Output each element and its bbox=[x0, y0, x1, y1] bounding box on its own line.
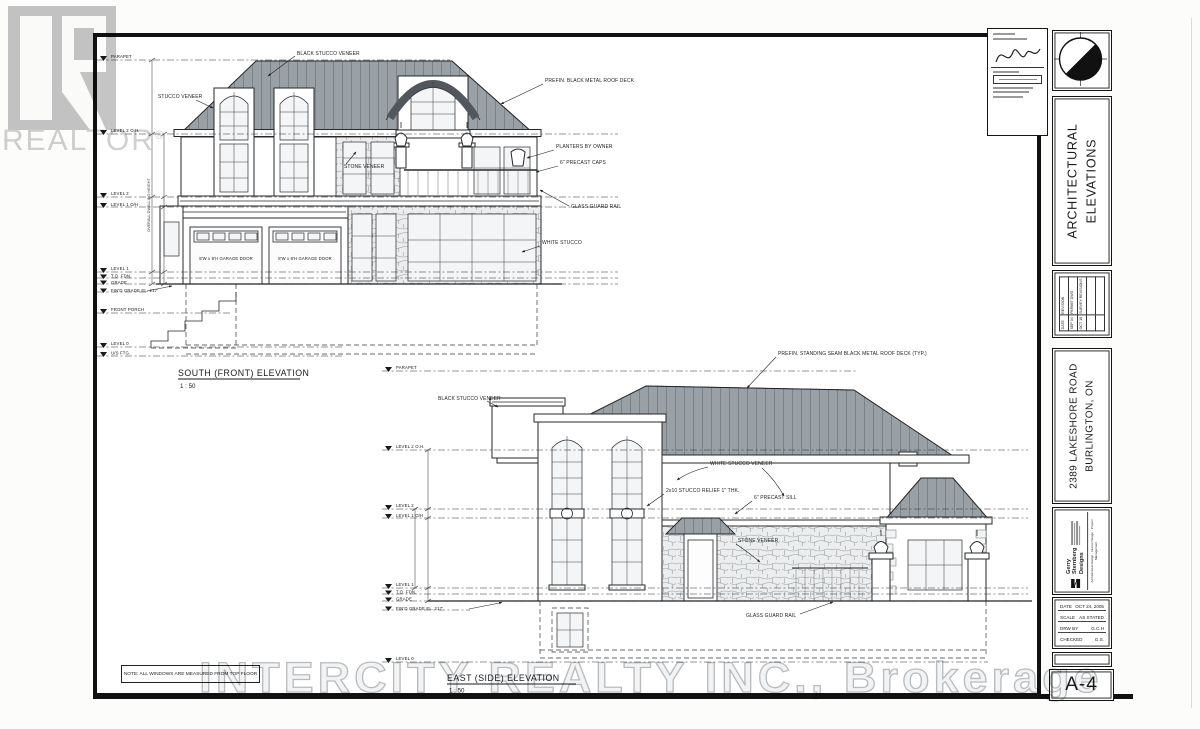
info-label: SCALE bbox=[1060, 615, 1075, 620]
east-dimension-lines bbox=[412, 448, 431, 603]
stamp-text-line bbox=[993, 96, 1023, 98]
sheet-number: A-4 bbox=[1065, 674, 1098, 696]
info-label: CHECKED bbox=[1060, 637, 1082, 642]
stamp-text-line bbox=[993, 87, 1033, 89]
level-label: LEVEL 2 O.H. bbox=[396, 444, 425, 449]
scan-edge-line bbox=[1191, 18, 1192, 708]
designer-name-line2: Sternberg bbox=[1073, 548, 1079, 574]
annotation-label: WHITE STUCCO VENEER bbox=[710, 461, 773, 467]
designer-logo-icon bbox=[1069, 577, 1082, 590]
info-row: SCALE AS STATED bbox=[1058, 614, 1106, 622]
level-label: FRONT PORCH bbox=[111, 307, 144, 312]
info-box: DATE OCT 24, 2005 SCALE AS STATED DRW BY… bbox=[1052, 597, 1112, 649]
revision-box: DATE REVISION SEP 04 PERMIT DWG OCT 18 S… bbox=[1052, 270, 1112, 338]
annotation-label: GLASS GUARD RAIL bbox=[746, 613, 796, 619]
annotation-label: STONE VENEER bbox=[344, 164, 385, 170]
info-value: G.C.H bbox=[1091, 626, 1104, 631]
info-value: G.S. bbox=[1095, 637, 1104, 642]
level-label: FIN'D GRADE EL. 217' bbox=[111, 288, 158, 293]
stamp-box bbox=[987, 28, 1048, 136]
level-label: LEVEL 1 O/H bbox=[111, 202, 138, 207]
annotation-label: PLANTERS BY OWNER bbox=[556, 144, 613, 150]
info-value: AS STATED bbox=[1079, 615, 1104, 620]
south-footing-dashes bbox=[151, 284, 537, 354]
garage-door-1: 8'W x 8'H GARAGE DOOR bbox=[190, 227, 262, 284]
balcony-planter bbox=[511, 149, 525, 166]
annotation-label: WHITE STUCCO bbox=[542, 240, 582, 246]
annotation-label: STUCCO VENEER bbox=[158, 94, 203, 100]
level-label: LEVEL 1 O/H bbox=[396, 513, 423, 518]
revision-desc: SURVEY REVISIONS bbox=[1078, 277, 1087, 315]
info-row: DATE OCT 24, 2005 bbox=[1058, 603, 1106, 611]
revision-desc: PERMIT DWG bbox=[1069, 277, 1078, 315]
project-address-line1: 2389 LAKESHORE ROAD bbox=[1067, 363, 1083, 488]
project-box: 2389 LAKESHORE ROAD BURLINGTON, ON bbox=[1052, 348, 1112, 504]
north-arrow-icon bbox=[1054, 32, 1107, 86]
south-dormer-window-1 bbox=[214, 88, 254, 196]
revision-date-header: DATE bbox=[1060, 315, 1069, 331]
level-label: LEVEL 2 bbox=[111, 191, 129, 196]
south-dormer-window-2 bbox=[274, 88, 314, 196]
east-elevation: PARAPET LEVEL 2 O.H. LEVEL 2 LEVEL 1 O/H… bbox=[382, 351, 1032, 695]
spacer-box bbox=[1052, 652, 1112, 667]
general-note: NOTE: ALL WINDOWS ARE MEASURED FROM TOP … bbox=[121, 665, 260, 683]
south-dimension-lines: OVERALL DWELLING HEIGHT bbox=[147, 58, 167, 286]
info-table: DATE OCT 24, 2005 SCALE AS STATED DRW BY… bbox=[1058, 603, 1106, 643]
garage-door-2: 8'W x 8'H GARAGE DOOR bbox=[269, 227, 341, 284]
level-label: T.O. FDN. bbox=[111, 274, 131, 279]
level-label: LEVEL 1 bbox=[111, 266, 129, 271]
discipline-line1: ARCHITECTURAL bbox=[1063, 123, 1082, 238]
stamp-text-line bbox=[993, 38, 1027, 40]
designer-services: Architectural Design · Interior Design ·… bbox=[1087, 512, 1098, 590]
revision-row bbox=[1096, 277, 1105, 331]
revision-row: OCT 18 SURVEY REVISIONS bbox=[1078, 277, 1087, 331]
stamp-text-line bbox=[993, 71, 1019, 73]
north-arrow-box bbox=[1052, 30, 1112, 91]
revision-row bbox=[1087, 277, 1096, 331]
scanned-drawing-sheet: { "watermarks": { "realtor_logo_text": "… bbox=[0, 0, 1200, 729]
level-label: LEVEL 2 O.H. bbox=[111, 128, 140, 133]
front-steps bbox=[151, 292, 236, 348]
level-label: U/S FTG. bbox=[111, 351, 130, 356]
revision-row: SEP 04 PERMIT DWG bbox=[1069, 277, 1078, 331]
level-label: LEVEL 0 bbox=[111, 341, 129, 346]
stamp-text-line bbox=[993, 33, 1015, 35]
info-label: DRW BY bbox=[1060, 626, 1078, 631]
level-label: PARAPET bbox=[396, 365, 417, 370]
info-row: CHECKED G.S. bbox=[1058, 636, 1106, 643]
stamp-text-line bbox=[993, 91, 1029, 93]
discipline-box: ARCHITECTURAL ELEVATIONS bbox=[1052, 96, 1112, 266]
east-bay bbox=[534, 414, 666, 601]
stamp-firm-box bbox=[993, 75, 1042, 84]
level-label: LEVEL 1 bbox=[396, 582, 414, 587]
south-elevation: 8'W x 8'H GARAGE DOOR 8'W x 8'H GARAGE D… bbox=[97, 51, 635, 390]
annotation-label: BLACK STUCCO VENEER bbox=[438, 396, 501, 402]
garage-door-label: 8'W x 8'H GARAGE DOOR bbox=[199, 256, 253, 261]
info-value: OCT 24, 2005 bbox=[1075, 604, 1104, 609]
level-label: PARAPET bbox=[111, 54, 132, 59]
south-center-dormer bbox=[386, 76, 480, 138]
info-label: DATE bbox=[1060, 604, 1072, 609]
revision-date: OCT 18 bbox=[1078, 315, 1087, 331]
signature-icon bbox=[992, 42, 1044, 66]
level-label: GRADE bbox=[111, 280, 127, 285]
drawing-canvas: 8'W x 8'H GARAGE DOOR 8'W x 8'H GARAGE D… bbox=[93, 33, 1041, 697]
annotation-label: GLASS GUARD RAIL bbox=[571, 204, 621, 210]
info-row: DRW BY G.C.H bbox=[1058, 625, 1106, 633]
level-label: LEVEL 2 bbox=[396, 503, 414, 508]
garage-door-label: 8'W x 8'H GARAGE DOOR bbox=[278, 256, 332, 261]
east-title: EAST (SIDE) ELEVATION bbox=[447, 673, 560, 683]
annotation-label: STONE VENEER bbox=[738, 538, 779, 544]
discipline-line2: ELEVATIONS bbox=[1082, 123, 1101, 238]
sheet-number-box: A-4 bbox=[1049, 669, 1114, 701]
east-footing-dashes bbox=[540, 601, 986, 658]
level-label: T.O. FDN. bbox=[396, 590, 416, 595]
annotation-label: PREFIN. BLACK METAL ROOF DECK bbox=[545, 78, 635, 84]
annotation-label: 6" PRECAST CAPS bbox=[560, 160, 607, 166]
level-label: LEVEL 0 bbox=[396, 656, 414, 661]
annotation-label: BLACK STUCCO VENEER bbox=[297, 51, 360, 57]
annotation-label: PREFIN. STANDING SEAM BLACK METAL ROOF D… bbox=[778, 351, 927, 357]
revision-header: REVISION bbox=[1060, 277, 1069, 315]
annotation-label: 6" PRECAST SILL bbox=[754, 495, 797, 501]
level-label: FIN'D GRADE EL. 217' bbox=[396, 606, 443, 611]
level-label: GRADE bbox=[396, 597, 412, 602]
revision-date: SEP 04 bbox=[1069, 315, 1078, 331]
east-scale: 1 : 50 bbox=[449, 688, 465, 695]
note-text: NOTE: ALL WINDOWS ARE MEASURED FROM TOP … bbox=[124, 672, 257, 677]
south-dim-label: OVERALL DWELLING HEIGHT bbox=[147, 177, 151, 231]
annotation-label: 2x10 STUCCO RELIEF 1" THK. bbox=[666, 488, 739, 494]
designer-box: Gerry Sternberg Designs Architectural De… bbox=[1052, 507, 1112, 595]
revision-table: DATE REVISION SEP 04 PERMIT DWG OCT 18 S… bbox=[1059, 277, 1105, 332]
project-address-line2: BURLINGTON, ON bbox=[1082, 363, 1098, 488]
designer-name-line3: Designs bbox=[1079, 548, 1085, 574]
south-title: SOUTH (FRONT) ELEVATION bbox=[178, 368, 309, 378]
south-scale: 1 : 50 bbox=[180, 383, 196, 390]
